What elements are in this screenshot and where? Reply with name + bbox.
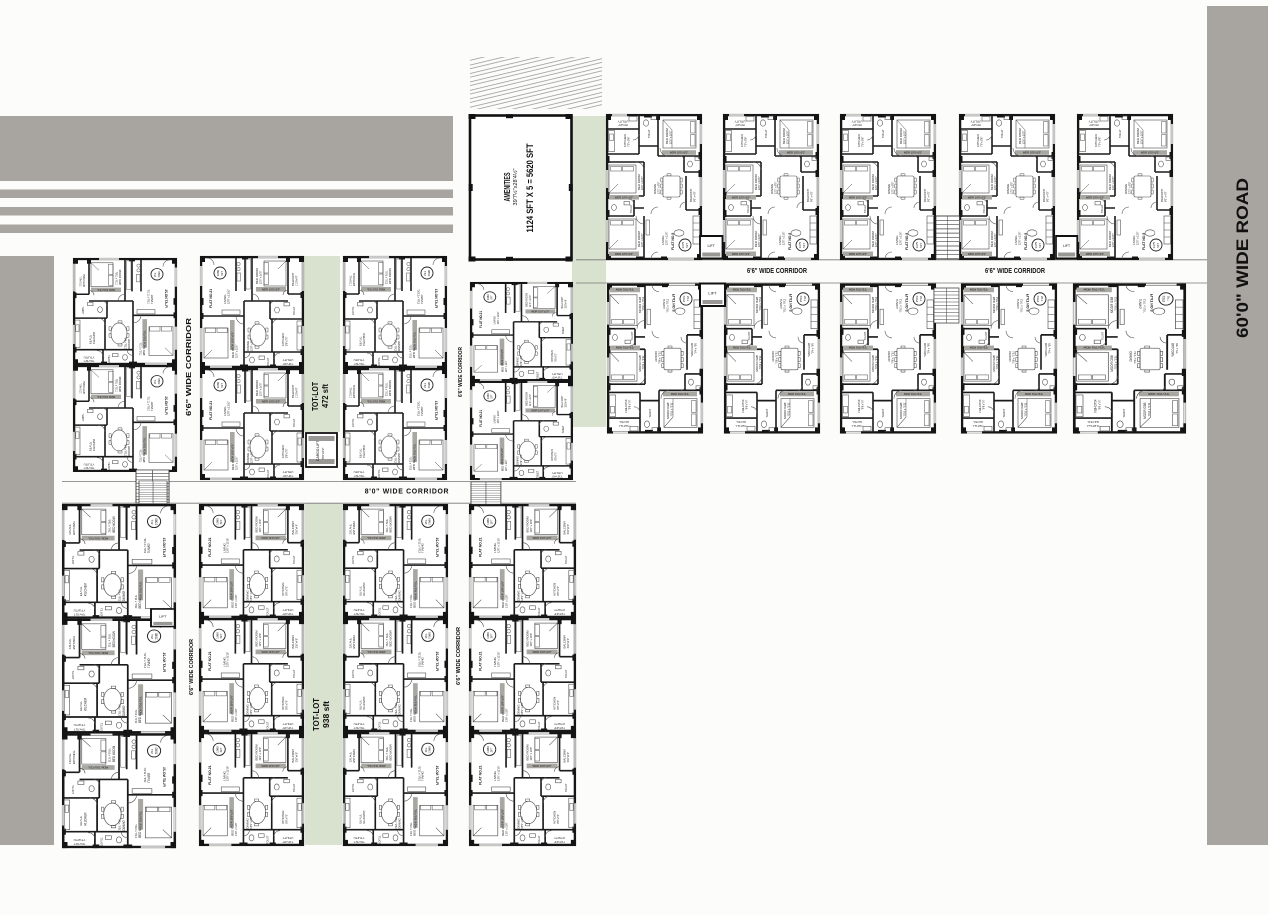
svg-text:6'6" WIDE CORRIDOR: 6'6" WIDE CORRIDOR: [184, 317, 193, 416]
svg-text:938 sft: 938 sft: [321, 701, 331, 728]
svg-text:6'6" WIDE CORRIDOR: 6'6" WIDE CORRIDOR: [456, 627, 462, 685]
svg-text:CARGO LIFT: CARGO LIFT: [316, 441, 320, 461]
svg-text:TOT-LOT: TOT-LOT: [311, 697, 321, 731]
svg-text:6'6" WIDE CORRIDOR: 6'6" WIDE CORRIDOR: [189, 639, 195, 695]
svg-text:60'0" WIDE ROAD: 60'0" WIDE ROAD: [1233, 178, 1252, 338]
svg-text:39'7½"x28'4½": 39'7½"x28'4½": [512, 168, 519, 205]
svg-text:AMENITIES: AMENITIES: [502, 172, 512, 201]
svg-text:6'6" WIDE CORRIDOR: 6'6" WIDE CORRIDOR: [985, 268, 1045, 275]
svg-text:6'6" WIDE CORRIDOR: 6'6" WIDE CORRIDOR: [458, 347, 464, 397]
svg-text:6'6" WIDE CORRIDOR: 6'6" WIDE CORRIDOR: [747, 268, 807, 275]
svg-text:472 sft: 472 sft: [321, 384, 330, 408]
svg-text:TOT-LOT: TOT-LOT: [311, 382, 320, 411]
svg-text:1124 SFT X 5 = 5620 SFT: 1124 SFT X 5 = 5620 SFT: [525, 143, 536, 232]
svg-text:8'0" WIDE CORRIDOR: 8'0" WIDE CORRIDOR: [365, 489, 450, 496]
svg-text:8'0"x6'0": 8'0"x6'0": [321, 448, 325, 459]
